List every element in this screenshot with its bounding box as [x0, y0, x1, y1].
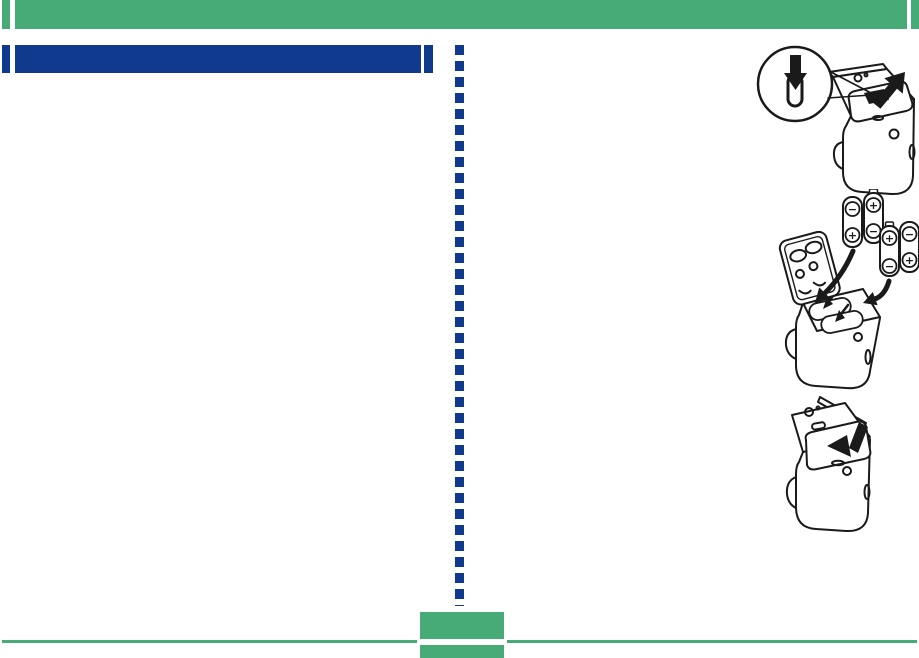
battery-terminal-symbol: −: [905, 228, 914, 241]
battery-terminal-symbol: +: [848, 229, 857, 242]
battery-terminal-symbol: +: [869, 199, 878, 212]
insert-batteries-arrow-icon: [875, 281, 889, 299]
battery-terminal-symbol: −: [869, 225, 878, 238]
top-bar-left-square: [2, 0, 10, 29]
page-number-box: [417, 612, 507, 658]
figure-step1-illustration: [745, 42, 919, 202]
title-bar-left-square: [2, 45, 10, 73]
strap-lug: [834, 142, 843, 169]
battery-terminal-symbol: −: [848, 203, 857, 216]
battery-compartment-lid: [778, 230, 841, 306]
top-bar: [15, 0, 907, 29]
column-divider-dashed-line: [455, 45, 464, 606]
manual-page: − + + − + − − +: [0, 0, 919, 658]
title-bar-right-cap: [424, 45, 433, 73]
battery-terminal-symbol: +: [885, 232, 894, 245]
camera-device: [826, 64, 915, 194]
top-dot: [817, 407, 820, 410]
top-bar-right-cap: [911, 0, 919, 29]
strap-lug: [786, 329, 796, 359]
strap-lug: [787, 477, 796, 508]
batteries-group: − + + − + − − +: [843, 189, 919, 276]
figure-step3-illustration: [761, 389, 916, 551]
page-box-stripe: [420, 639, 504, 645]
battery-terminal-symbol: +: [905, 254, 914, 267]
section-title-bar: [15, 45, 421, 73]
battery-terminal-symbol: −: [885, 260, 894, 273]
figure-step2-illustration: − + + − + − − +: [737, 189, 919, 401]
